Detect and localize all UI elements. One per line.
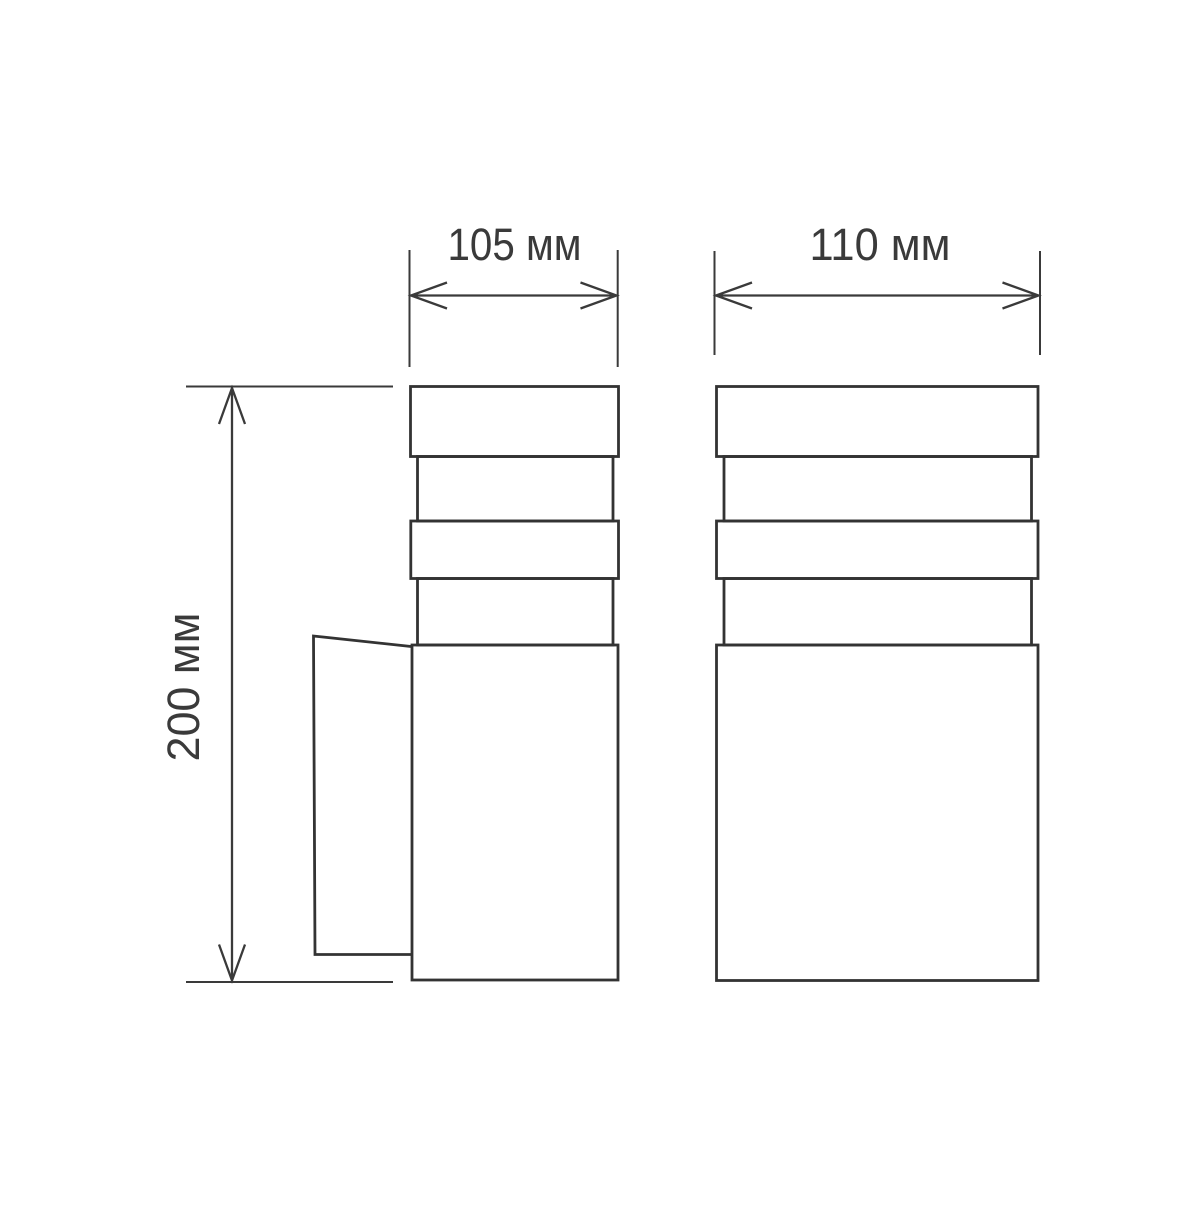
svg-text:110 мм: 110 мм <box>810 219 951 270</box>
svg-text:200 мм: 200 мм <box>158 613 209 762</box>
svg-text:105 мм: 105 мм <box>448 219 582 270</box>
